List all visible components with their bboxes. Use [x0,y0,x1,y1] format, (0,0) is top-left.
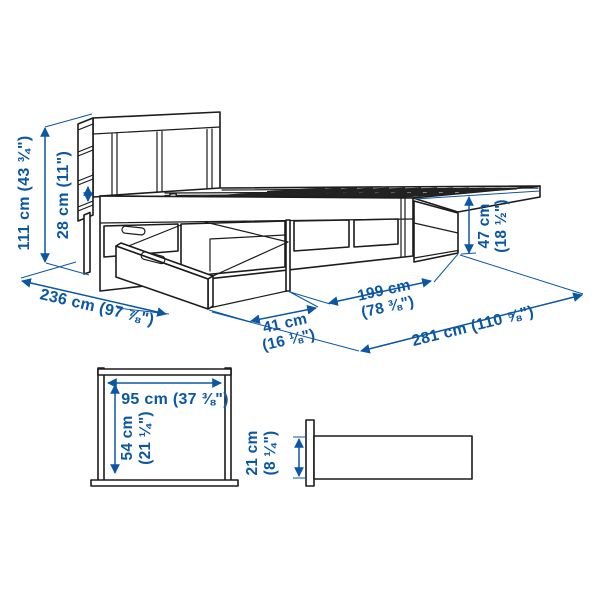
label-foot-height: 47 cm (18 ½") [476,199,510,253]
mid-divider-leg [286,220,290,291]
side-view-rail-board [314,436,472,479]
label-bed-width: 236 cm (97 ⅞") [38,286,156,329]
svg-text:21 cm: 21 cm [244,431,261,476]
svg-text:54 cm: 54 cm [119,416,136,461]
label-shelf-gap: 28 cm (11") [55,151,72,239]
headboard-leg [84,213,90,275]
drawer-cavity [181,221,285,277]
side-view-drawing [306,420,472,486]
label-frontview-width: 95 cm (37 ⅜") [121,391,229,408]
svg-text:47 cm: 47 cm [476,204,493,249]
front-view-right-post [225,368,231,481]
svg-text:(21 ¼"): (21 ¼") [137,411,154,465]
label-total-length: 281 cm (110 ⅝") [410,303,535,350]
front-view-left-post [98,368,104,481]
diagram-stage: 111 cm (43 ¾") 28 cm (11") 236 cm (97 ⅞"… [0,0,600,600]
svg-text:(18 ½"): (18 ½") [493,199,510,253]
front-view-top-beam [98,369,231,375]
label-frame-length: 199 cm (78 ⅜") [356,276,416,321]
svg-text:(8 ¼"): (8 ¼") [262,431,279,476]
front-view-base [91,480,238,486]
right-drawer-front-2 [354,219,398,247]
right-drawer-front-1 [294,220,349,251]
label-sideview-height: 21 cm (8 ¼") [244,431,279,476]
front-view-drawing [91,368,238,486]
bed-3d-drawing [78,112,540,309]
bed-dimension-diagram: 111 cm (43 ¾") 28 cm (11") 236 cm (97 ⅞"… [0,0,600,600]
side-view-end-plate [306,420,314,486]
label-headboard-height: 111 cm (43 ¾") [16,136,33,251]
label-frontview-height: 54 cm (21 ¼") [119,411,154,465]
label-drawer-pullout: 41 cm (16 ⅛") [257,310,317,355]
